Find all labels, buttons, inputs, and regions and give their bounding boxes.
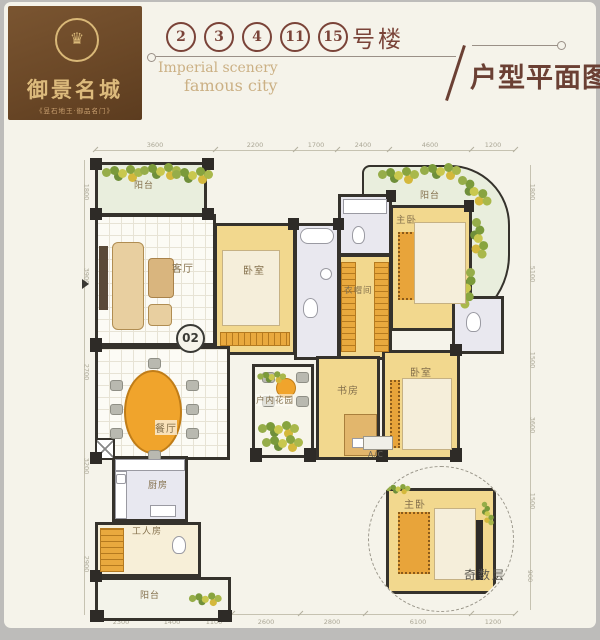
- room-label-garden: 户内花园: [256, 394, 294, 406]
- wall-pier: [202, 158, 214, 170]
- room-label-study: 书房: [337, 382, 359, 397]
- plants: [102, 168, 111, 177]
- dining-table: [124, 370, 182, 454]
- coffee-table: [148, 258, 174, 298]
- chair: [148, 358, 161, 369]
- building-number-badge: 15: [318, 22, 348, 52]
- plants: [172, 170, 181, 179]
- room-label-bottom-balcony: 阳台: [140, 588, 160, 601]
- chair: [262, 372, 275, 383]
- wall-pier: [218, 610, 232, 622]
- brand-tagline: 《昱石地王·御品名门》: [8, 105, 142, 115]
- dim-label: 1500: [528, 493, 536, 510]
- dim-label: 2700: [82, 364, 90, 381]
- plants: [140, 166, 149, 175]
- dim-label: 4600: [422, 141, 439, 149]
- wall-pier: [288, 218, 299, 230]
- plants: [378, 170, 387, 179]
- unit-number-badge: 02: [176, 324, 205, 353]
- subtitle-en-line1: Imperial scenery: [158, 60, 278, 76]
- building-suffix: 号楼: [352, 20, 404, 54]
- dim-label: 2800: [324, 618, 341, 626]
- sink: [320, 268, 332, 280]
- dim-label: 1800: [82, 184, 90, 201]
- wall-pier: [90, 610, 104, 622]
- wall-pier: [464, 200, 474, 212]
- room-label-detail-master: 主卧: [404, 496, 426, 511]
- wall-pier: [90, 338, 102, 352]
- plants: [420, 166, 429, 175]
- header-divider-right: [472, 45, 558, 46]
- room-label-cloakroom: 衣帽间: [344, 284, 373, 296]
- brand-name: 御景名城: [8, 74, 142, 104]
- plants: [262, 438, 271, 447]
- rug: [398, 512, 430, 574]
- wall-pier: [333, 218, 344, 230]
- dim-label: 5100: [528, 266, 536, 283]
- ac-label: A/C: [368, 450, 384, 459]
- chair: [296, 396, 309, 407]
- page-title: 户型平面图: [470, 56, 600, 95]
- chair: [110, 380, 123, 391]
- vanity-counter: [343, 199, 387, 214]
- subtitle-en-line2: famous city: [184, 76, 277, 95]
- room-label-bedroom2: 卧室: [410, 364, 432, 379]
- dim-label: 3600: [147, 141, 164, 149]
- entry-arrow-icon: [82, 279, 89, 289]
- dim-label: 2200: [247, 141, 264, 149]
- dimension-line-top: [95, 150, 515, 151]
- dim-label: 1200: [485, 141, 502, 149]
- room-label-kitchen: 厨房: [148, 478, 168, 491]
- building-number-badge: 3: [204, 22, 234, 52]
- bathtub: [300, 228, 334, 244]
- armchair: [148, 304, 172, 326]
- brand-logo: ♛ 御景名城 《昱石地王·御品名门》: [8, 6, 142, 120]
- room-label-bedroom1: 卧室: [243, 262, 265, 277]
- odd-floor-detail: 主卧: [368, 466, 512, 610]
- kitchen-counter: [115, 459, 185, 471]
- wall-pier: [386, 190, 396, 202]
- divider-endcap: [147, 53, 156, 62]
- dim-label: 1500: [528, 352, 536, 369]
- bottom-balcony: [95, 577, 231, 621]
- room-label-top-balcony: 阳台: [134, 178, 154, 191]
- toilet: [303, 298, 318, 318]
- chair: [186, 380, 199, 391]
- odd-floor-note: 奇数层: [464, 566, 506, 583]
- header-divider: [156, 56, 456, 57]
- room-label-master: 主卧: [396, 212, 417, 226]
- wall-pier: [90, 452, 102, 464]
- wall-pier: [250, 448, 262, 462]
- toilet: [466, 312, 481, 332]
- sofa: [112, 242, 144, 330]
- toilet: [172, 536, 186, 554]
- dim-label: 1700: [308, 141, 325, 149]
- kitchen-sink: [116, 474, 126, 484]
- building-number-badge: 11: [280, 22, 310, 52]
- closet-cabinet: [374, 262, 389, 352]
- wall-pier: [304, 448, 316, 462]
- dim-label: 2600: [258, 618, 275, 626]
- wall-pier: [90, 158, 102, 170]
- dimension-line-right: [530, 165, 531, 610]
- wall-pier: [450, 448, 462, 462]
- chair: [110, 428, 123, 439]
- ac-platform: [363, 436, 393, 450]
- plants: [189, 595, 196, 602]
- chair: [186, 428, 199, 439]
- chair: [186, 404, 199, 415]
- dim-label: 3600: [528, 417, 536, 434]
- wall-pier: [90, 208, 102, 220]
- plants: [258, 424, 267, 433]
- floorplan-poster: { "logo": { "name_cn": "御景名城", "tagline"…: [0, 0, 600, 640]
- room-label-master-balcony: 阳台: [420, 188, 440, 201]
- building-number-badge: 2: [166, 22, 196, 52]
- plants: [257, 373, 263, 379]
- dim-label: 1200: [485, 618, 502, 626]
- wall-pier: [202, 208, 214, 220]
- tv-cabinet: [99, 246, 108, 310]
- crown-emblem-icon: ♛: [55, 18, 99, 62]
- plants: [386, 486, 391, 491]
- building-number-badge: 4: [242, 22, 272, 52]
- dim-label: 900: [526, 570, 534, 582]
- closet-cabinet: [341, 262, 356, 352]
- wall-pier: [450, 344, 462, 356]
- bunk-bed: [100, 528, 124, 572]
- chair: [296, 372, 309, 383]
- dim-label: 6100: [410, 618, 427, 626]
- room-label-living: 客厅: [172, 260, 194, 275]
- room-label-maid: 工人房: [132, 524, 162, 537]
- toilet: [352, 226, 365, 244]
- chair: [110, 404, 123, 415]
- dimension-line-left: [84, 160, 85, 615]
- bed: [414, 222, 466, 304]
- stove: [150, 505, 176, 517]
- wardrobe: [220, 332, 290, 346]
- divider-endcap: [557, 41, 566, 50]
- dim-label: 2400: [355, 141, 372, 149]
- dim-label: 1800: [528, 184, 536, 201]
- room-label-dining: 餐厅: [155, 420, 177, 435]
- bed: [402, 378, 452, 450]
